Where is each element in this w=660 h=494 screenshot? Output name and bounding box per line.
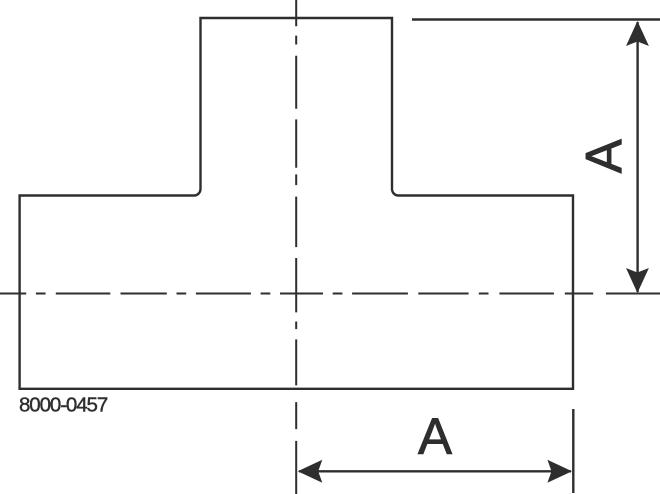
svg-text:A: A (575, 139, 632, 173)
svg-text:A: A (418, 408, 452, 465)
svg-text:8000-0457: 8000-0457 (19, 393, 108, 416)
